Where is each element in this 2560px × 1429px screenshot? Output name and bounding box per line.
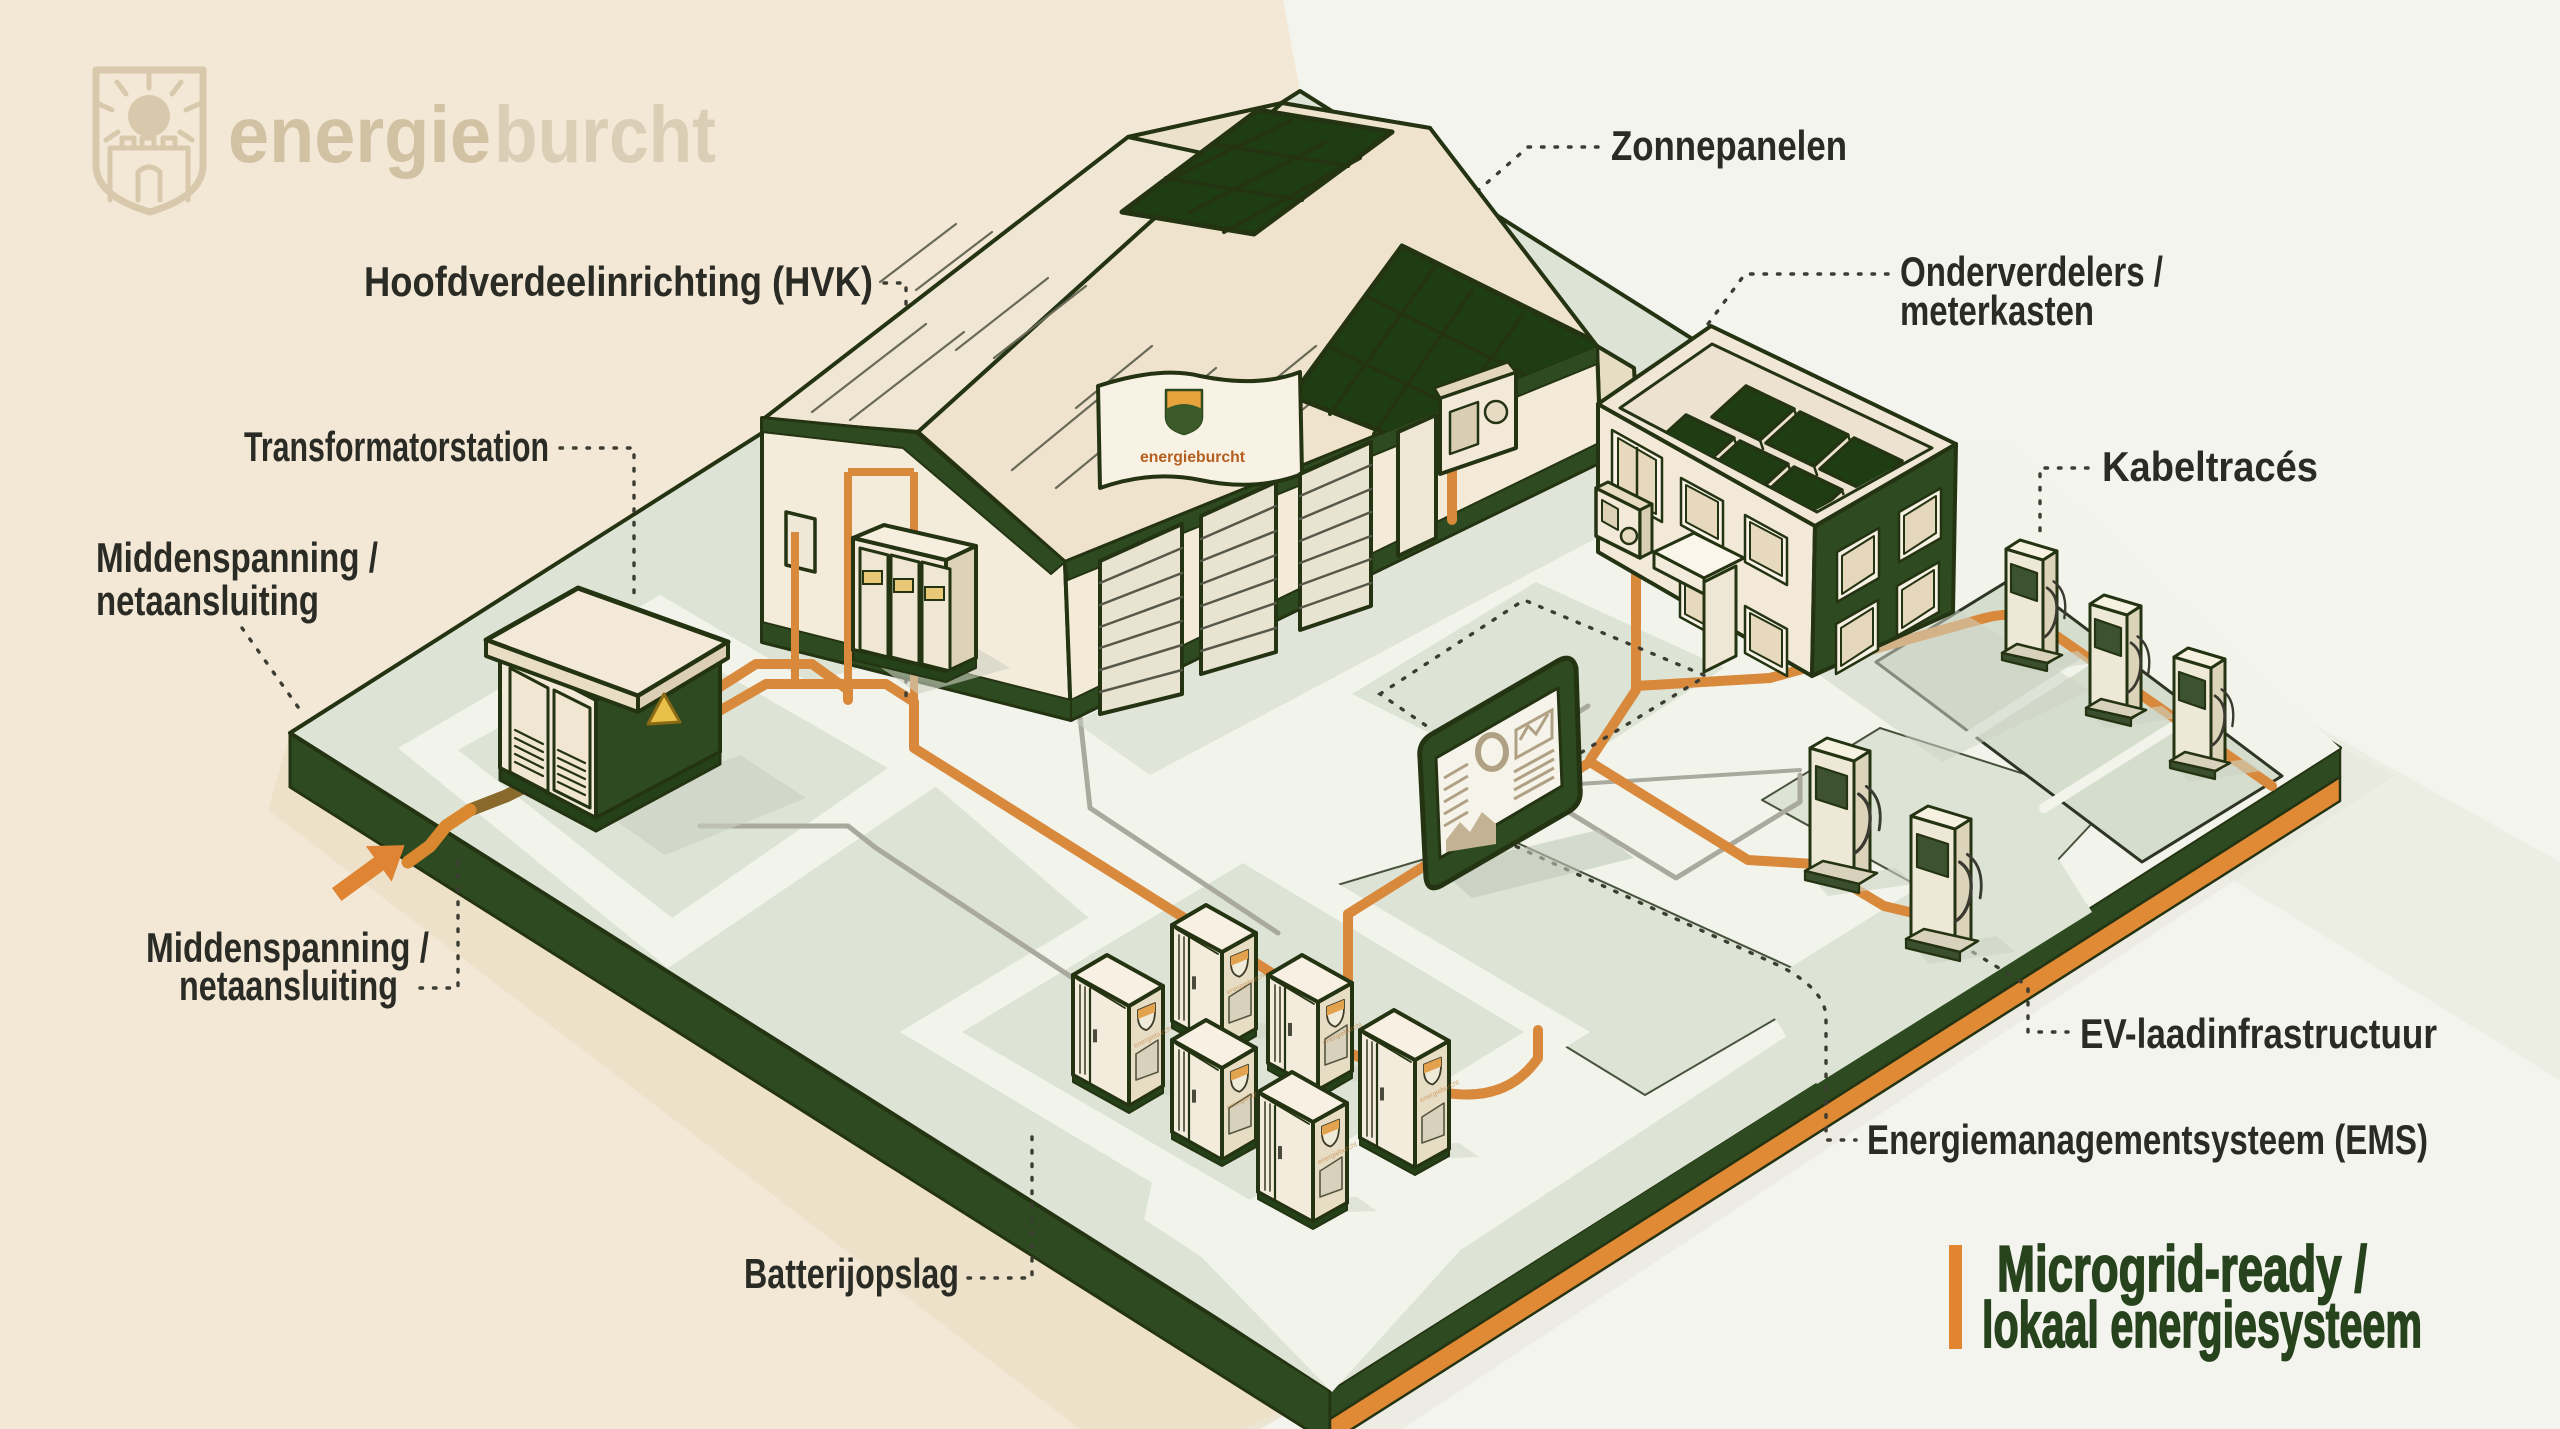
svg-text:lokaal energiesysteem: lokaal energiesysteem — [1982, 1288, 2422, 1361]
svg-text:Energiemanagementsysteem (EMS): Energiemanagementsysteem (EMS) — [1867, 1116, 2428, 1163]
svg-text:Transformatorstation: Transformatorstation — [244, 423, 549, 470]
svg-text:burcht: burcht — [494, 90, 716, 179]
svg-text:Zonnepanelen: Zonnepanelen — [1611, 122, 1847, 169]
svg-text:energie: energie — [228, 90, 491, 179]
svg-text:energieburcht: energieburcht — [1140, 449, 1246, 466]
svg-text:meterkasten: meterkasten — [1900, 287, 2094, 334]
svg-text:EV-laadinfrastructuur: EV-laadinfrastructuur — [2080, 1010, 2437, 1057]
svg-text:netaansluiting: netaansluiting — [96, 577, 319, 624]
svg-text:Batterijopslag: Batterijopslag — [744, 1250, 959, 1297]
svg-text:Middenspanning /: Middenspanning / — [96, 534, 378, 581]
svg-text:netaansluiting: netaansluiting — [179, 962, 398, 1009]
svg-text:Kabeltracés: Kabeltracés — [2102, 443, 2318, 490]
svg-text:Hoofdverdeelinrichting (HVK): Hoofdverdeelinrichting (HVK) — [364, 258, 873, 305]
